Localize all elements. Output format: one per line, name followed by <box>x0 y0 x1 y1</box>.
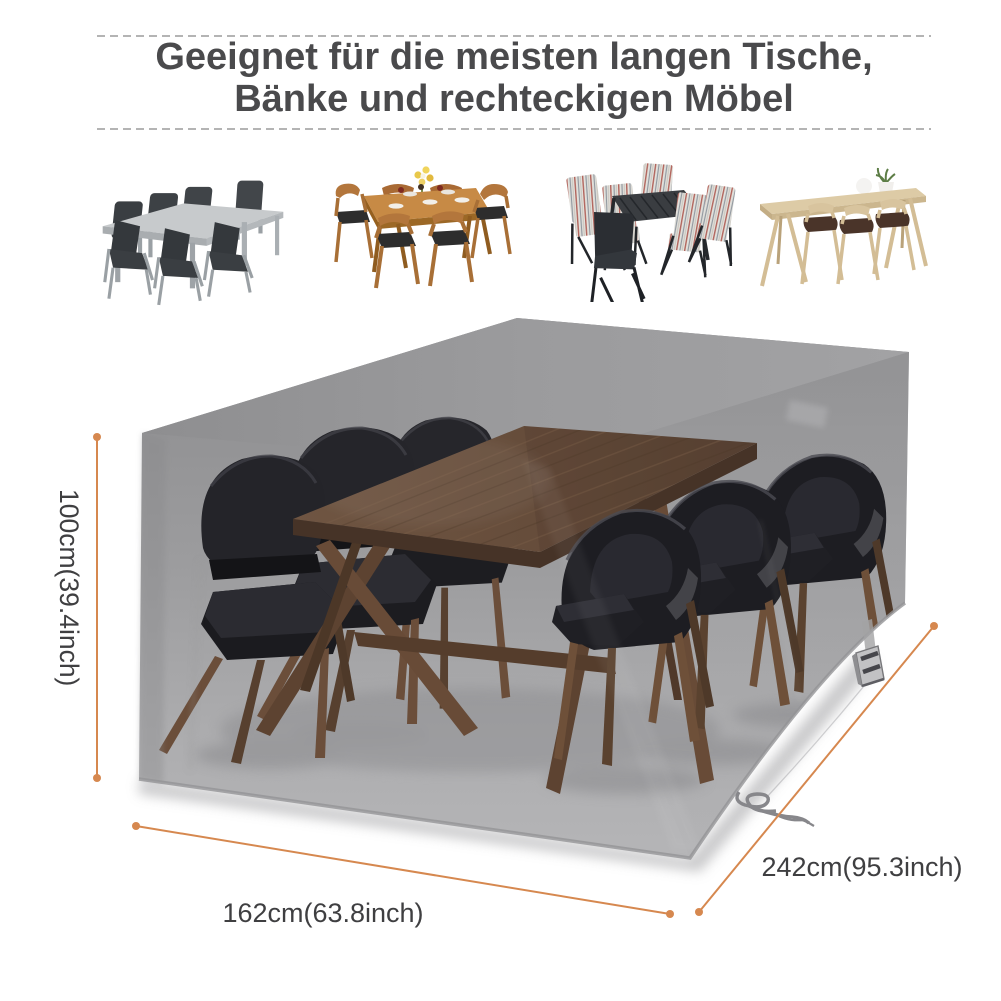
svg-text:162cm(63.8inch): 162cm(63.8inch) <box>222 898 423 928</box>
svg-text:100cm(39.4inch): 100cm(39.4inch) <box>54 489 84 686</box>
svg-text:242cm(95.3inch): 242cm(95.3inch) <box>761 852 962 882</box>
